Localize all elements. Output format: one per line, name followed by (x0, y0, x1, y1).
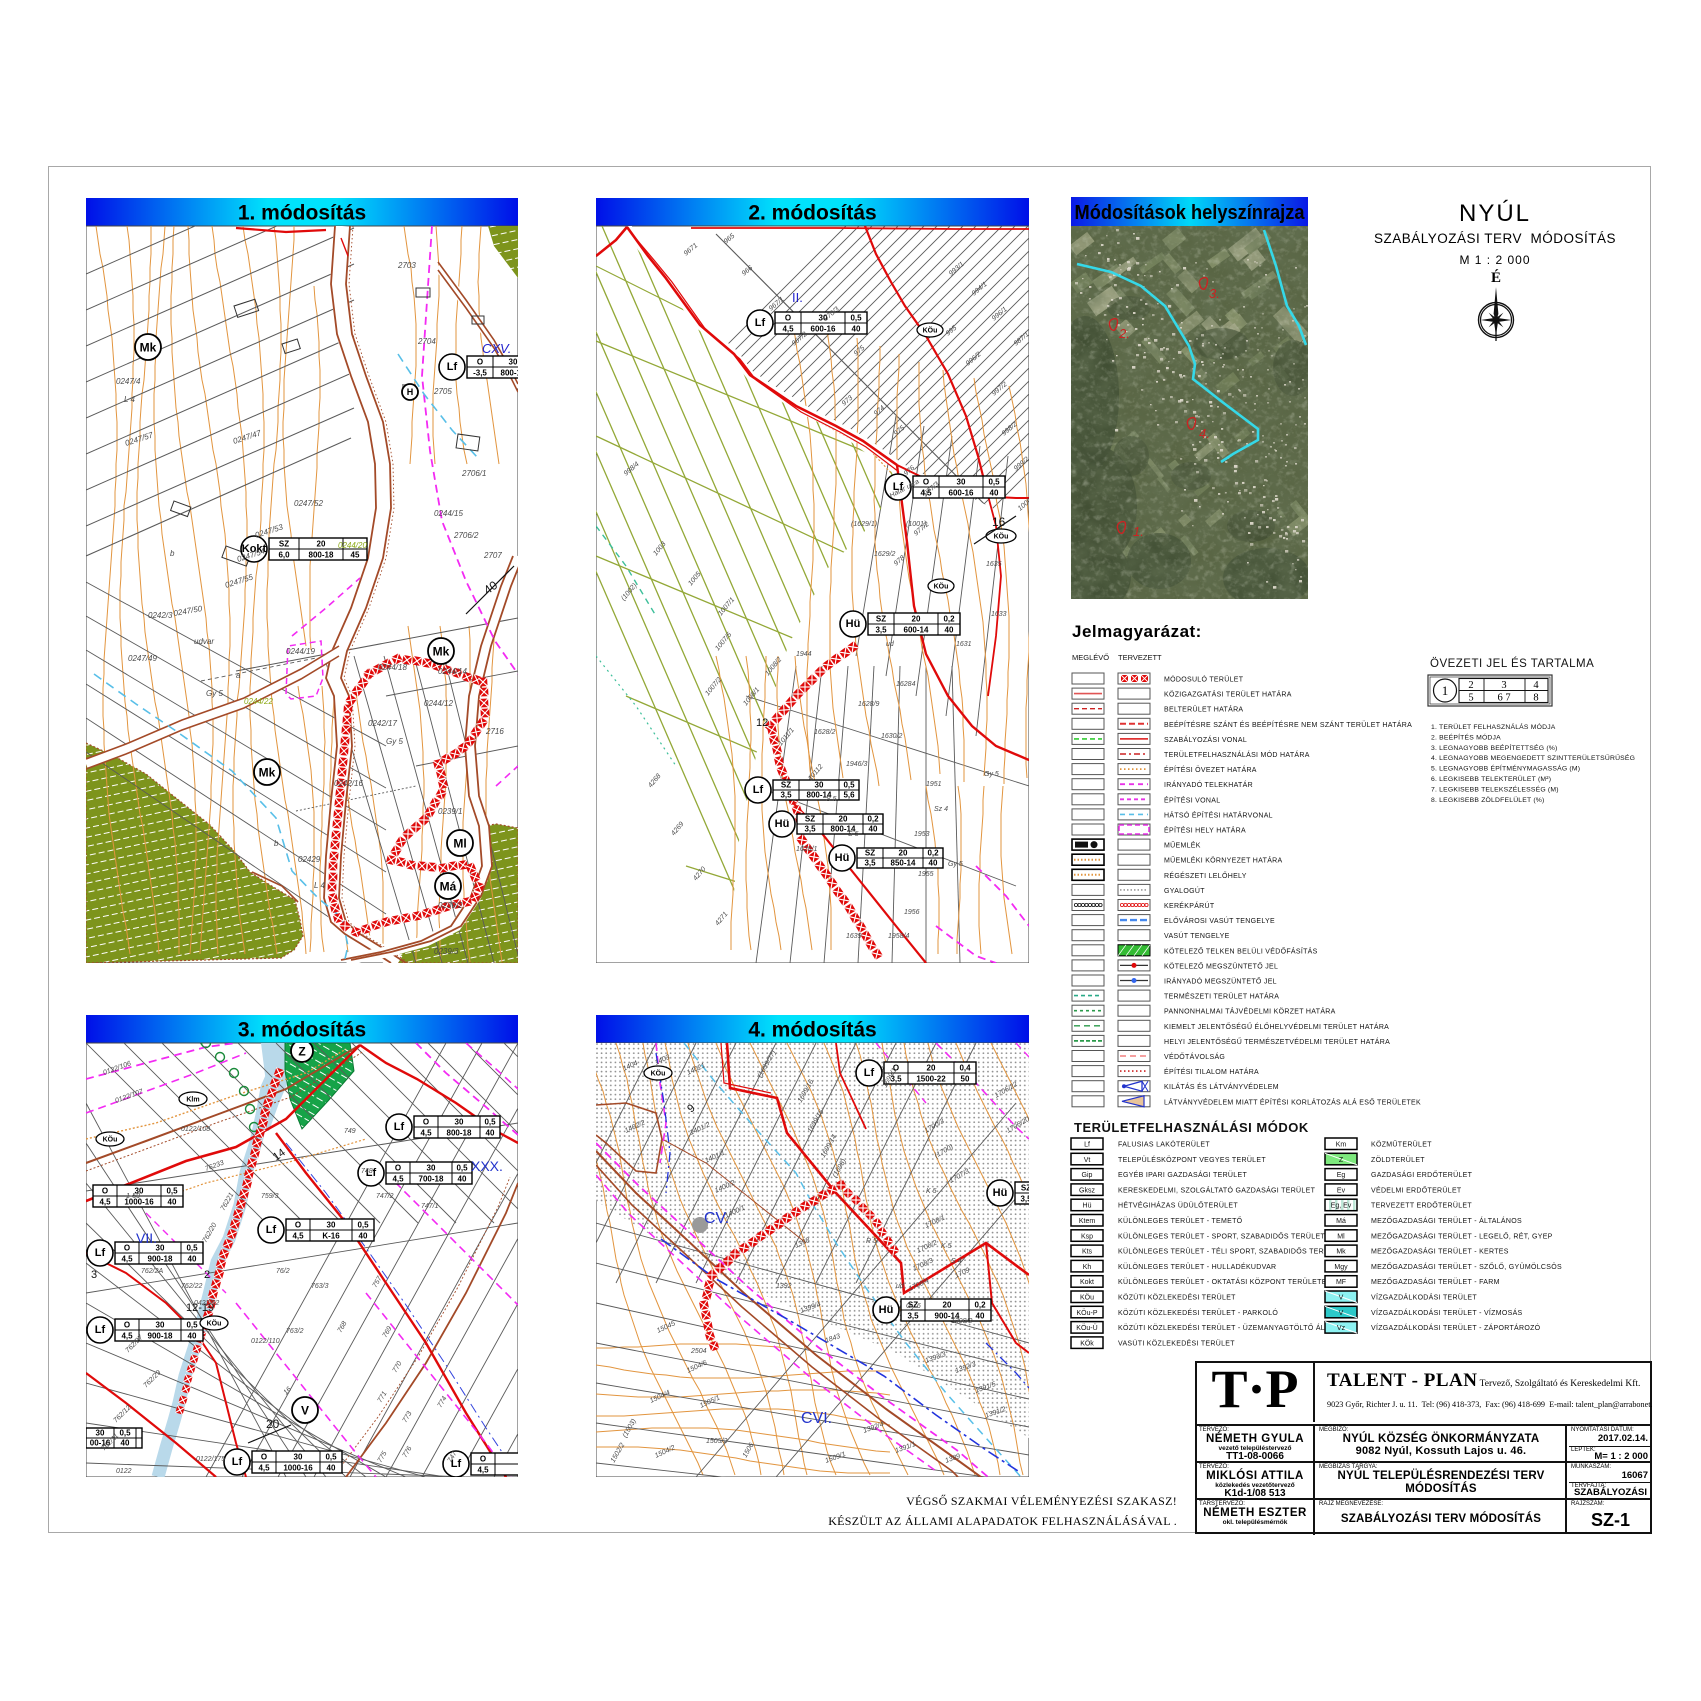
svg-text:3. LEGNAGYOBB BEÉPÍTETTSÉG (%): 3. LEGNAGYOBB BEÉPÍTETTSÉG (%) (1431, 743, 1558, 752)
svg-text:HÁTSÓ ÉPÍTÉSI HATÁRVONAL: HÁTSÓ ÉPÍTÉSI HATÁRVONAL (1164, 810, 1273, 819)
svg-text:763/2: 763/2 (286, 1328, 304, 1335)
svg-text:0,5: 0,5 (484, 1118, 496, 1127)
svg-text:Km: Km (1336, 1142, 1347, 1149)
svg-text:40: 40 (945, 626, 954, 635)
svg-text:1639: 1639 (846, 933, 862, 940)
svg-text:900-18: 900-18 (148, 1255, 173, 1264)
svg-text:MEZŐGAZDASÁGI TERÜLET - ÁLTALÁ: MEZŐGAZDASÁGI TERÜLET - ÁLTALÁNOS (1371, 1216, 1522, 1225)
svg-text:O: O (124, 1321, 130, 1330)
svg-text:45: 45 (351, 551, 360, 560)
svg-text:2706/2: 2706/2 (453, 531, 479, 540)
svg-text:KÖZÚTI KÖZLEKEDÉSI TERÜLET: KÖZÚTI KÖZLEKEDÉSI TERÜLET (1118, 1293, 1236, 1302)
svg-text:R 5: R 5 (866, 1238, 877, 1245)
svg-text:HÉTVÉGIHÁZAS ÜDÜLŐTERÜLET: HÉTVÉGIHÁZAS ÜDÜLŐTERÜLET (1118, 1201, 1238, 1210)
svg-text:40: 40 (458, 1175, 467, 1184)
svg-text:1628/9: 1628/9 (858, 701, 880, 708)
svg-text:0239/3: 0239/3 (434, 947, 459, 956)
svg-text:MF: MF (1336, 1279, 1346, 1286)
svg-text:20: 20 (943, 1301, 952, 1310)
svg-text:4,5: 4,5 (392, 1175, 404, 1184)
svg-text:4,5: 4,5 (121, 1255, 133, 1264)
svg-text:4,5: 4,5 (258, 1464, 270, 1473)
svg-text:HELYI JELENTŐSÉGŰ TERMÉSZETVÉD: HELYI JELENTŐSÉGŰ TERMÉSZETVÉDELMI TERÜL… (1164, 1037, 1390, 1046)
svg-text:ELŐVÁROSI VASÚT TENGELYE: ELŐVÁROSI VASÚT TENGELYE (1164, 916, 1275, 925)
svg-text:Hü: Hü (846, 618, 861, 630)
svg-text:40: 40 (359, 1232, 368, 1241)
svg-text:1955: 1955 (918, 871, 934, 878)
svg-text:0242/3: 0242/3 (148, 611, 173, 620)
svg-text:O: O (923, 478, 929, 487)
svg-text:0247/4: 0247/4 (116, 377, 141, 386)
svg-text:Mk: Mk (433, 644, 450, 658)
svg-text:0,5: 0,5 (357, 1221, 369, 1230)
svg-text:40: 40 (121, 1439, 130, 1448)
svg-text:MEZŐGAZDASÁGI TERÜLET - FARM: MEZŐGAZDASÁGI TERÜLET - FARM (1371, 1277, 1500, 1286)
svg-text:2: 2 (1468, 680, 1473, 691)
svg-text:4,5: 4,5 (782, 325, 794, 334)
svg-text:0,5: 0,5 (166, 1187, 178, 1196)
svg-text:6,0: 6,0 (278, 551, 290, 560)
svg-text:0122/175: 0122/175 (196, 1456, 225, 1463)
svg-text:40: 40 (929, 859, 938, 868)
svg-text:GYALOGÚT: GYALOGÚT (1164, 886, 1205, 895)
svg-text:KÖTELEZŐ MEGSZÜNTETŐ JEL: KÖTELEZŐ MEGSZÜNTETŐ JEL (1164, 961, 1278, 970)
svg-text:K 5: K 5 (941, 1243, 952, 1250)
svg-text:1635: 1635 (986, 561, 1002, 568)
svg-text:1944: 1944 (796, 651, 812, 658)
svg-text:PANNONHALMAI TÁJVÉDELMI KÖRZET: PANNONHALMAI TÁJVÉDELMI KÖRZET HATÁRA (1164, 1007, 1336, 1016)
svg-text:0,5: 0,5 (325, 1453, 337, 1462)
svg-text:3. módosítás: 3. módosítás (238, 1019, 366, 1042)
svg-text:K-16: K-16 (322, 1232, 340, 1241)
svg-text:VII.: VII. (136, 1230, 157, 1246)
svg-text:Mk: Mk (259, 765, 276, 779)
svg-text:O: O (395, 1164, 401, 1173)
svg-text:1. módosítás: 1. módosítás (238, 202, 366, 225)
svg-text:762/2A: 762/2A (141, 1268, 164, 1275)
svg-text:KÖu: KÖu (651, 1069, 666, 1078)
svg-text:800-18: 800-18 (309, 551, 334, 560)
svg-text:KÜLÖNLEGES TERÜLET - HULLADÉKU: KÜLÖNLEGES TERÜLET - HULLADÉKUDVAR (1118, 1262, 1276, 1271)
svg-text:40: 40 (990, 489, 999, 498)
svg-text:2. BEÉPÍTÉS MÓDJA: 2. BEÉPÍTÉS MÓDJA (1431, 732, 1501, 741)
svg-text:0247/52: 0247/52 (294, 499, 323, 508)
svg-text:TERÜLETFELHASZNÁLÁSI MÓDOK: TERÜLETFELHASZNÁLÁSI MÓDOK (1074, 1120, 1309, 1135)
svg-text:40: 40 (188, 1332, 197, 1341)
svg-text:0244/22: 0244/22 (244, 697, 273, 706)
svg-text:4,5: 4,5 (99, 1198, 111, 1207)
svg-text:S 5: S 5 (826, 796, 837, 803)
svg-text:Hü: Hü (1083, 1203, 1092, 1210)
svg-text:KÖZÚTI KÖZLEKEDÉSI TERÜLET - P: KÖZÚTI KÖZLEKEDÉSI TERÜLET - PARKOLÓ (1118, 1308, 1278, 1317)
svg-text:ÉPÍTÉSI HELY HATÁRA: ÉPÍTÉSI HELY HATÁRA (1164, 826, 1246, 835)
svg-text:S 5: S 5 (848, 831, 859, 838)
svg-text:7. LEGKISEBB TELEKSZÉLESSÉG (M: 7. LEGKISEBB TELEKSZÉLESSÉG (M) (1431, 784, 1559, 793)
svg-text:VÉDELMI ERDŐTERÜLET: VÉDELMI ERDŐTERÜLET (1371, 1185, 1462, 1194)
svg-text:3,5: 3,5 (864, 859, 876, 868)
svg-text:KÖu-P: KÖu-P (1076, 1309, 1097, 1317)
svg-text:5: 5 (1468, 693, 1473, 704)
svg-text:a: a (236, 671, 241, 680)
svg-text:4,5: 4,5 (121, 1332, 133, 1341)
svg-text:4. LEGNAGYOBB MEGENGEDETT SZIN: 4. LEGNAGYOBB MEGENGEDETT SZINTTERÜLETSŰ… (1431, 753, 1635, 762)
svg-text:3.: 3. (1209, 286, 1220, 301)
svg-text:0,2: 0,2 (974, 1301, 986, 1310)
svg-text:0122: 0122 (116, 1468, 132, 1475)
svg-text:0239/2: 0239/2 (438, 901, 463, 910)
svg-text:Ktem: Ktem (1079, 1218, 1096, 1225)
svg-text:Lf: Lf (753, 784, 764, 796)
svg-text:1946/3: 1946/3 (846, 761, 868, 768)
svg-text:747/2: 747/2 (376, 1193, 394, 1200)
svg-text:0122/108: 0122/108 (181, 1126, 210, 1133)
svg-text:b: b (274, 839, 279, 848)
svg-text:O: O (261, 1453, 267, 1462)
svg-text:Gksz: Gksz (1079, 1187, 1095, 1194)
svg-text:1631: 1631 (956, 641, 972, 648)
svg-text:2706/1: 2706/1 (461, 469, 486, 478)
svg-text:0244/15: 0244/15 (434, 509, 463, 518)
svg-text:II.: II. (792, 290, 803, 305)
svg-text:1392: 1392 (776, 1283, 792, 1290)
svg-text:Mk: Mk (140, 340, 157, 354)
svg-text:600-16: 600-16 (949, 489, 974, 498)
svg-text:KÖu: KÖu (923, 326, 938, 335)
svg-text:900-18: 900-18 (148, 1332, 173, 1341)
svg-text:0,5: 0,5 (988, 478, 1000, 487)
svg-text:V: V (1339, 1295, 1344, 1302)
svg-text:Ksp: Ksp (1081, 1233, 1093, 1240)
svg-text:0422/82: 0422/82 (194, 1300, 219, 1307)
svg-text:0,4: 0,4 (959, 1064, 971, 1073)
svg-text:50: 50 (961, 1075, 970, 1084)
svg-text:0244/14: 0244/14 (438, 667, 467, 676)
svg-text:Z: Z (298, 1044, 305, 1058)
svg-text:O: O (480, 1455, 486, 1464)
svg-text:Kokt: Kokt (1080, 1279, 1094, 1286)
svg-text:0244/19: 0244/19 (286, 647, 315, 656)
svg-text:Hü: Hü (879, 1304, 894, 1316)
svg-text:20: 20 (927, 1064, 936, 1073)
svg-text:KÖu: KÖu (934, 582, 949, 591)
svg-text:1958/4: 1958/4 (888, 933, 910, 940)
svg-text:GAZDASÁGI ERDŐTERÜLET: GAZDASÁGI ERDŐTERÜLET (1371, 1170, 1473, 1179)
svg-text:VÍZGAZDÁLKODÁSI TERÜLET - VÍZM: VÍZGAZDÁLKODÁSI TERÜLET - VÍZMOSÁS (1371, 1308, 1523, 1317)
svg-text:Gy 5: Gy 5 (206, 689, 223, 698)
svg-text:O: O (477, 358, 483, 367)
svg-text:12: 12 (756, 717, 768, 729)
svg-text:MŰEMLÉKI KÖRNYEZET HATÁRA: MŰEMLÉKI KÖRNYEZET HATÁRA (1164, 856, 1283, 865)
svg-text:KÖk: KÖk (1080, 1339, 1094, 1347)
svg-text:1500-22: 1500-22 (916, 1075, 946, 1084)
svg-text:Z: Z (1339, 1157, 1344, 1164)
svg-text:0247/49: 0247/49 (128, 654, 157, 663)
svg-text:747/1: 747/1 (421, 1203, 439, 1210)
svg-text:VÍZGAZDÁLKODÁSI TERÜLET - ZÁPO: VÍZGAZDÁLKODÁSI TERÜLET - ZÁPORTÁROZÓ (1371, 1323, 1541, 1332)
svg-text:5,6: 5,6 (843, 791, 855, 800)
svg-text:30: 30 (427, 1164, 436, 1173)
svg-text:KERÉKPÁRÚT: KERÉKPÁRÚT (1164, 901, 1215, 910)
svg-text:ÉPÍTÉSI ÖVEZET HATÁRA: ÉPÍTÉSI ÖVEZET HATÁRA (1164, 765, 1257, 774)
svg-text:1. TERÜLET FELHASZNÁLÁS MÓDJA: 1. TERÜLET FELHASZNÁLÁS MÓDJA (1431, 722, 1556, 731)
svg-text:Gip: Gip (1082, 1172, 1093, 1179)
svg-text:K 5: K 5 (926, 1188, 937, 1195)
svg-text:748: 748 (361, 1168, 373, 1175)
svg-text:Lf: Lf (755, 317, 766, 329)
svg-text:VASÚT TENGELYE: VASÚT TENGELYE (1164, 931, 1230, 940)
svg-text:KÖZÚTI KÖZLEKEDÉSI TERÜLET - Ü: KÖZÚTI KÖZLEKEDÉSI TERÜLET - ÜZEMANYAGTÖ… (1118, 1323, 1351, 1332)
svg-text:Módosítások helyszínrajza: Módosítások helyszínrajza (1075, 202, 1306, 224)
svg-text:0,5: 0,5 (186, 1321, 198, 1330)
svg-text:Klm: Klm (186, 1097, 199, 1104)
svg-text:É: É (1491, 269, 1501, 286)
svg-text:8. LEGKISEBB ZÖLDFELÜLET (%): 8. LEGKISEBB ZÖLDFELÜLET (%) (1431, 796, 1545, 804)
svg-text:4,5: 4,5 (420, 1129, 432, 1138)
svg-text:SZ: SZ (865, 849, 875, 858)
svg-text:2703: 2703 (397, 261, 416, 270)
svg-text:4: 4 (1533, 680, 1539, 691)
svg-text:40: 40 (188, 1255, 197, 1264)
svg-text:LÁTVÁNYVÉDELEM MIATT ÉPÍTÉSI K: LÁTVÁNYVÉDELEM MIATT ÉPÍTÉSI KORLÁTOZÁS … (1164, 1097, 1421, 1106)
svg-text:1.: 1. (1133, 524, 1144, 539)
svg-text:Lf: Lf (95, 1247, 106, 1259)
svg-text:S 4: S 4 (951, 1258, 962, 1265)
svg-text:O: O (423, 1118, 429, 1127)
svg-text:30: 30 (294, 1453, 303, 1462)
svg-text:O: O (295, 1221, 301, 1230)
svg-text:Eg: Eg (1337, 1172, 1346, 1179)
svg-text:0,5: 0,5 (850, 314, 862, 323)
svg-text:30: 30 (327, 1221, 336, 1230)
svg-text:5. LEGNAGYOBB ÉPÍTMÉNYMAGASSÁG: 5. LEGNAGYOBB ÉPÍTMÉNYMAGASSÁG (M) (1431, 764, 1580, 773)
svg-text:KÖu-Ü: KÖu-Ü (1076, 1324, 1097, 1332)
svg-text:Mgy: Mgy (1334, 1264, 1348, 1271)
svg-text:0,5: 0,5 (456, 1164, 468, 1173)
svg-text:CVI.: CVI. (801, 1410, 832, 1427)
svg-text:O: O (124, 1244, 130, 1253)
svg-text:VÍZGAZDÁLKODÁSI TERÜLET: VÍZGAZDÁLKODÁSI TERÜLET (1371, 1293, 1477, 1302)
svg-text:SZ: SZ (1021, 1184, 1029, 1193)
svg-text:KÖZMŰTERÜLET: KÖZMŰTERÜLET (1371, 1140, 1432, 1149)
svg-text:1951: 1951 (926, 781, 942, 788)
svg-text:VASÚTI KÖZLEKEDÉSI TERÜLET: VASÚTI KÖZLEKEDÉSI TERÜLET (1118, 1338, 1235, 1347)
svg-text:BELTERÜLET HATÁRA: BELTERÜLET HATÁRA (1164, 705, 1243, 714)
svg-text:2504: 2504 (690, 1348, 707, 1355)
svg-text:0242/17: 0242/17 (368, 719, 397, 728)
svg-text:Gy 5: Gy 5 (948, 861, 963, 868)
svg-text:Má: Má (440, 879, 457, 893)
svg-text:ÉPÍTÉSI VONAL: ÉPÍTÉSI VONAL (1164, 795, 1220, 804)
svg-text:20: 20 (912, 615, 921, 624)
svg-text:Lf: Lf (394, 1121, 405, 1133)
svg-text:2707: 2707 (483, 551, 502, 560)
svg-text:Vt: Vt (1084, 1157, 1091, 1164)
svg-text:TERÜLETFELHASZNÁLÁSI MÓD HATÁR: TERÜLETFELHASZNÁLÁSI MÓD HATÁRA (1164, 750, 1310, 759)
svg-text:KÖZIGAZGATÁSI TERÜLET HATÁRA: KÖZIGAZGATÁSI TERÜLET HATÁRA (1164, 690, 1292, 699)
svg-text:KÜLÖNLEGES TERÜLET - SPORT, SZ: KÜLÖNLEGES TERÜLET - SPORT, SZABADIDŐS T… (1118, 1231, 1325, 1240)
svg-text:Ev: Ev (1337, 1187, 1346, 1194)
svg-text:30: 30 (815, 781, 824, 790)
svg-text:749: 749 (344, 1128, 356, 1135)
svg-text:Vz: Vz (1337, 1325, 1346, 1332)
svg-text:0242/16: 0242/16 (334, 779, 363, 788)
svg-text:20: 20 (839, 815, 848, 824)
svg-text:BEÉPÍTÉSRE SZÁNT ÉS BEÉPÍTÉSRE: BEÉPÍTÉSRE SZÁNT ÉS BEÉPÍTÉSRE NEM SZÁNT… (1164, 720, 1412, 729)
svg-text:1398/2: 1398/2 (951, 1318, 973, 1325)
svg-text:850-14: 850-14 (891, 859, 916, 868)
svg-text:TELEPÜLÉSKÖZPONT VEGYES TERÜLE: TELEPÜLÉSKÖZPONT VEGYES TERÜLET (1118, 1155, 1266, 1164)
svg-text:40: 40 (869, 825, 878, 834)
svg-text:0,5: 0,5 (843, 781, 855, 790)
svg-text:Hü: Hü (835, 852, 850, 864)
svg-text:SZ: SZ (805, 815, 815, 824)
svg-text:3,5: 3,5 (804, 825, 816, 834)
svg-text:Lf: Lf (1084, 1142, 1090, 1149)
svg-text:(1629/1): (1629/1) (851, 521, 877, 528)
svg-text:V: V (1339, 1310, 1344, 1317)
svg-text:MEZŐGAZDASÁGI TERÜLET - LEGELŐ: MEZŐGAZDASÁGI TERÜLET - LEGELŐ, RÉT, GYE… (1371, 1231, 1553, 1240)
svg-text:EGYÉB IPARI GAZDASÁGI TERÜLET: EGYÉB IPARI GAZDASÁGI TERÜLET (1118, 1170, 1247, 1179)
svg-text:4. módosítás: 4. módosítás (748, 1019, 876, 1042)
svg-text:3: 3 (1501, 680, 1506, 691)
svg-text:40: 40 (327, 1464, 336, 1473)
svg-text:RÉGÉSZETI LELŐHELY: RÉGÉSZETI LELŐHELY (1164, 871, 1247, 880)
svg-text:8: 8 (1533, 693, 1538, 704)
svg-text:Lf: Lf (447, 361, 458, 373)
svg-text:Gy 6: Gy 6 (906, 1303, 921, 1310)
svg-text:2705: 2705 (433, 387, 452, 396)
svg-text:40: 40 (486, 1129, 495, 1138)
svg-text:KILÁTÁS ÉS LÁTVÁNYVÉDELEM: KILÁTÁS ÉS LÁTVÁNYVÉDELEM (1164, 1082, 1279, 1091)
svg-text:MEZŐGAZDASÁGI TERÜLET - SZŐLŐ,: MEZŐGAZDASÁGI TERÜLET - SZŐLŐ, GYÜMÖLCSÖ… (1371, 1262, 1562, 1271)
svg-text:TERVEZETT ERDŐTERÜLET: TERVEZETT ERDŐTERÜLET (1371, 1201, 1472, 1210)
svg-text:ÉPÍTÉSI TILALOM HATÁRA: ÉPÍTÉSI TILALOM HATÁRA (1164, 1067, 1259, 1076)
svg-text:2716: 2716 (485, 727, 504, 736)
svg-text:KÜLÖNLEGES TERÜLET - TÉLI SPOR: KÜLÖNLEGES TERÜLET - TÉLI SPORT, SZABADI… (1118, 1247, 1344, 1256)
svg-text:MÓDOSULÓ TERÜLET: MÓDOSULÓ TERÜLET (1164, 675, 1244, 684)
svg-text:Sz 4: Sz 4 (934, 806, 948, 813)
svg-text:20: 20 (899, 849, 908, 858)
svg-text:Mk: Mk (1336, 1249, 1346, 1256)
svg-text:Kts: Kts (1082, 1249, 1093, 1256)
svg-text:KIEMELT JELENTŐSÉGŰ ÉLŐHELYVÉD: KIEMELT JELENTŐSÉGŰ ÉLŐHELYVÉDELMI TERÜL… (1164, 1022, 1389, 1031)
svg-text:-3,5: -3,5 (473, 369, 487, 378)
svg-text:Hü: Hü (993, 1187, 1008, 1199)
svg-text:0,5: 0,5 (119, 1429, 131, 1438)
svg-text:Hü: Hü (775, 818, 790, 830)
svg-text:3,5: 3,5 (907, 1312, 919, 1321)
svg-text:L 4: L 4 (124, 395, 136, 404)
svg-text:KÖu: KÖu (103, 1135, 118, 1144)
svg-text:763/3: 763/3 (311, 1283, 329, 1290)
svg-text:0239/1: 0239/1 (438, 807, 462, 816)
svg-text:Ml: Ml (1337, 1233, 1345, 1240)
svg-text:20: 20 (317, 540, 326, 549)
svg-text:ud: ud (896, 1283, 905, 1290)
svg-text:TERVEZETT: TERVEZETT (1118, 653, 1162, 662)
svg-text:30: 30 (156, 1321, 165, 1330)
svg-text:0,2: 0,2 (927, 849, 939, 858)
svg-text:Lf: Lf (232, 1456, 243, 1468)
svg-text:MŰEMLÉK: MŰEMLÉK (1164, 841, 1201, 850)
svg-text:KÜLÖNLEGES TERÜLET - OKTATÁSI: KÜLÖNLEGES TERÜLET - OKTATÁSI KÖZPONT TE… (1118, 1277, 1327, 1286)
svg-text:XXX.: XXX. (471, 1158, 503, 1174)
svg-text:ZÖLDTERÜLET: ZÖLDTERÜLET (1371, 1156, 1425, 1164)
svg-text:SZ: SZ (781, 781, 791, 790)
svg-text:Lf: Lf (266, 1224, 277, 1236)
svg-text:700-18: 700-18 (419, 1175, 444, 1184)
svg-text:4.: 4. (1199, 426, 1210, 441)
svg-text:udvar: udvar (194, 637, 214, 646)
svg-text:Ml: Ml (453, 836, 466, 850)
svg-text:(1001): (1001) (906, 521, 926, 528)
svg-text:Kh: Kh (1083, 1264, 1092, 1271)
svg-text:0,5: 0,5 (186, 1244, 198, 1253)
svg-text:4,5: 4,5 (477, 1466, 489, 1475)
svg-text:FALUSIAS LAKÓTERÜLET: FALUSIAS LAKÓTERÜLET (1118, 1140, 1210, 1149)
svg-text:KÖu: KÖu (994, 532, 1009, 541)
svg-text:1953: 1953 (914, 831, 930, 838)
svg-text:0244/18: 0244/18 (378, 663, 407, 672)
svg-text:20: 20 (266, 1417, 280, 1431)
svg-text:TERMÉSZETI TERÜLET HATÁRA: TERMÉSZETI TERÜLET HATÁRA (1164, 992, 1279, 1001)
svg-text:1: 1 (1442, 683, 1449, 698)
svg-text:0122/110: 0122/110 (251, 1338, 280, 1345)
svg-text:2704: 2704 (417, 337, 436, 346)
svg-text:V: V (301, 1403, 309, 1417)
svg-text:ud: ud (886, 641, 895, 648)
svg-text:6 7: 6 7 (1497, 693, 1510, 704)
svg-text:Eg, Ev: Eg, Ev (1331, 1203, 1352, 1210)
svg-text:30: 30 (455, 1118, 464, 1127)
svg-text:0244/20: 0244/20 (338, 541, 367, 550)
svg-text:800-18: 800-18 (447, 1129, 472, 1138)
svg-text:VÉDŐTÁVOLSÁG: VÉDŐTÁVOLSÁG (1164, 1052, 1225, 1061)
svg-text:762/22: 762/22 (181, 1283, 203, 1290)
svg-text:1000-16: 1000-16 (283, 1464, 313, 1473)
svg-text:O: O (785, 314, 791, 323)
svg-text:40: 40 (852, 325, 861, 334)
svg-text:Gy 5: Gy 5 (984, 771, 999, 778)
svg-text:1630/2: 1630/2 (881, 733, 903, 740)
svg-text:0,2: 0,2 (943, 615, 955, 624)
svg-text:1629/2: 1629/2 (874, 551, 896, 558)
svg-text:4,5: 4,5 (292, 1232, 304, 1241)
svg-text:IRÁNYADÓ TELEKHATÁR: IRÁNYADÓ TELEKHATÁR (1164, 780, 1253, 789)
svg-text:1505/2: 1505/2 (706, 1438, 728, 1445)
svg-text:MEZŐGAZDASÁGI TERÜLET - KERTES: MEZŐGAZDASÁGI TERÜLET - KERTES (1371, 1247, 1509, 1256)
svg-text:1628/1: 1628/1 (796, 846, 818, 853)
svg-text:L 4: L 4 (314, 881, 326, 890)
svg-text:IRÁNYADÓ MEGSZÜNTETŐ JEL: IRÁNYADÓ MEGSZÜNTETŐ JEL (1164, 977, 1277, 986)
svg-text:Gy 5: Gy 5 (386, 737, 403, 746)
svg-text:KERESKEDELMI, SZOLGÁLTATÓ GAZD: KERESKEDELMI, SZOLGÁLTATÓ GAZDASÁGI TERÜ… (1118, 1185, 1316, 1194)
svg-text:SZABÁLYOZÁSI VONAL: SZABÁLYOZÁSI VONAL (1164, 735, 1247, 744)
svg-text:b: b (170, 549, 175, 558)
svg-text:1956: 1956 (904, 909, 920, 916)
svg-text:3,5: 3,5 (780, 791, 792, 800)
svg-text:MEGLÉVŐ: MEGLÉVŐ (1072, 653, 1109, 662)
svg-text:H: H (407, 387, 414, 397)
svg-text:800-18: 800-18 (501, 369, 518, 378)
svg-text:02429: 02429 (298, 855, 321, 864)
svg-text:1628/2: 1628/2 (814, 729, 836, 736)
svg-text:ÖVEZETI JEL ÉS TARTALMA: ÖVEZETI JEL ÉS TARTALMA (1430, 657, 1594, 670)
svg-text:KÖu: KÖu (1080, 1294, 1094, 1302)
svg-text:30: 30 (96, 1429, 105, 1438)
svg-text:KÖu: KÖu (207, 1319, 222, 1328)
svg-text:2. módosítás: 2. módosítás (748, 202, 876, 225)
